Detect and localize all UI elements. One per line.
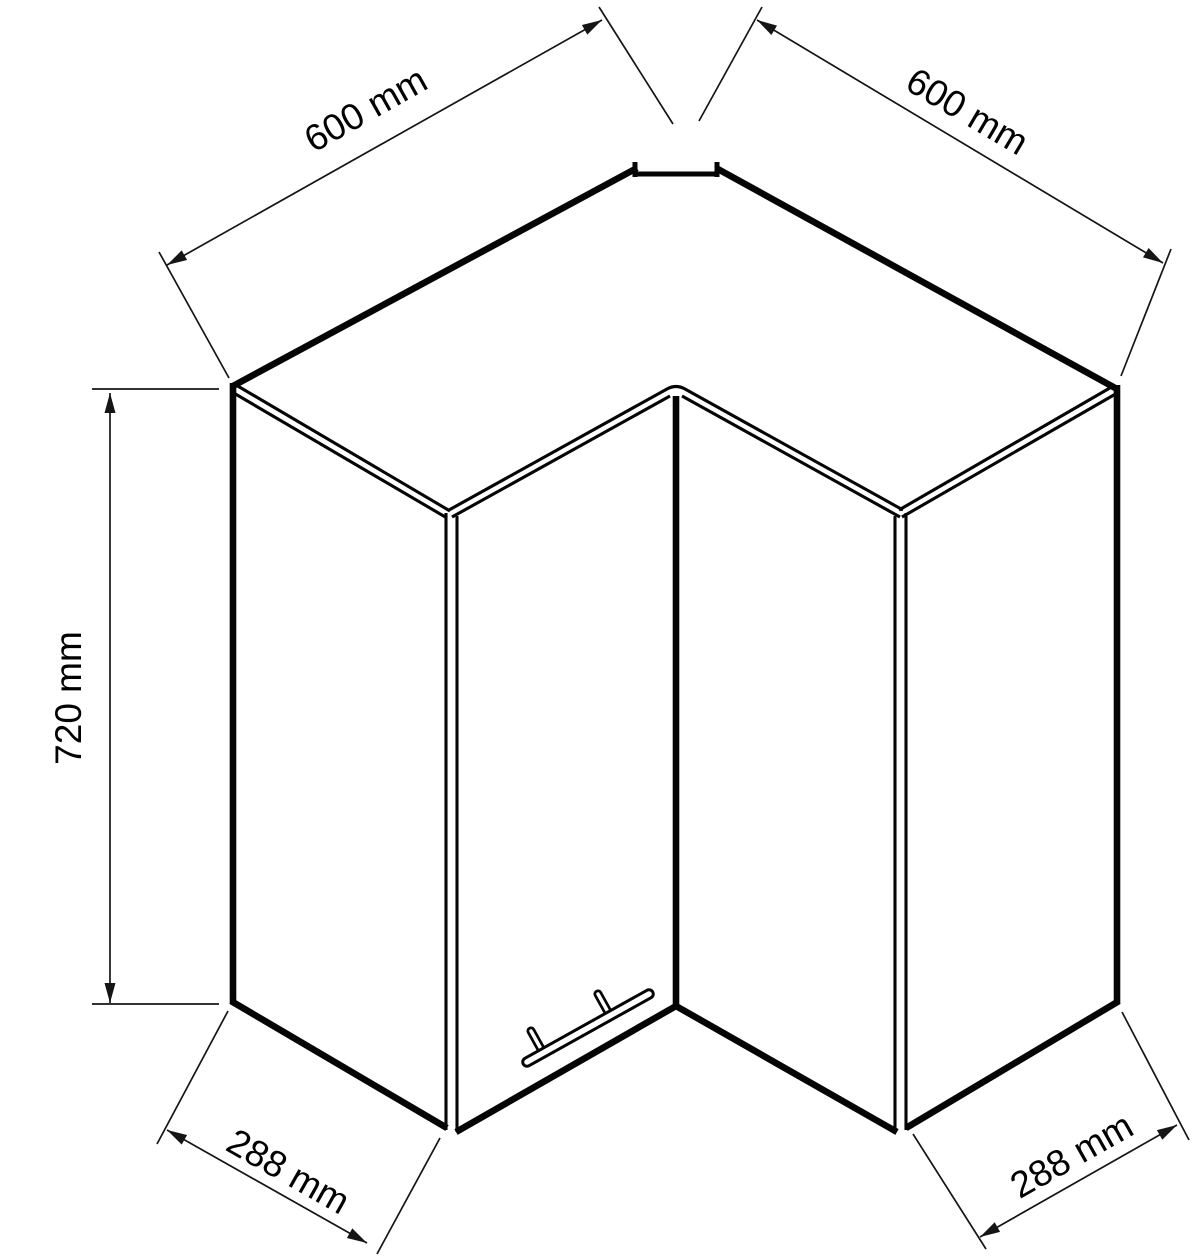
dimension-line [167,20,602,265]
door-handle [527,994,649,1062]
left-panel-bottom-edge [231,1001,447,1128]
witness-line [913,1134,986,1249]
dimension-label-600-left: 600 mm [297,59,434,160]
dimension-label-600-right: 600 mm [899,60,1035,163]
arrowhead [105,393,116,413]
arrowhead [167,1130,187,1145]
dimension-720-height: 720 mm [48,389,219,1004]
arrowhead [1143,248,1163,263]
witness-line [1121,249,1171,376]
arrowhead [582,20,602,35]
top-right-outer-edge [716,168,1117,389]
dimension-label-720: 720 mm [48,631,89,765]
top-front-edge-inner-right-b [682,396,900,517]
top-front-edge-left-outer-b [232,392,447,518]
arrowhead [980,1222,1000,1237]
top-front-edge-right-outer-a [899,385,1115,510]
witness-line [1122,1012,1189,1140]
arrowhead [757,20,777,35]
dimension-label-288-right: 288 mm [1003,1105,1140,1207]
top-front-edge-right-outer-b [902,392,1119,517]
corner-cabinet-drawing: 600 mm 600 mm 720 mm 288 mm 288 mm [0,0,1200,1258]
door-bottom-edges [456,1006,897,1132]
top-front-edge-left-outer-a [236,385,450,511]
handle-bar-fill [527,994,649,1062]
arrowhead [105,983,116,1003]
dimension-288-bottom-left: 288 mm [157,1011,440,1254]
witness-line [159,252,229,378]
witness-line [699,7,762,121]
witness-line [157,1011,228,1144]
arrowhead [167,250,187,265]
cabinet-outline [231,162,1119,1132]
top-left-outer-edge [233,168,637,386]
arrowhead [347,1228,367,1243]
right-panel-bottom-edge [906,1001,1119,1128]
dimension-600-top-right: 600 mm [699,7,1171,376]
technical-drawing-canvas: 600 mm 600 mm 720 mm 288 mm 288 mm [0,0,1200,1258]
arrowhead [1157,1125,1177,1140]
dimension-288-bottom-right: 288 mm [913,1012,1189,1249]
witness-line [599,7,673,124]
top-front-edge-inner-left-b [452,396,670,517]
witness-line [377,1138,440,1254]
